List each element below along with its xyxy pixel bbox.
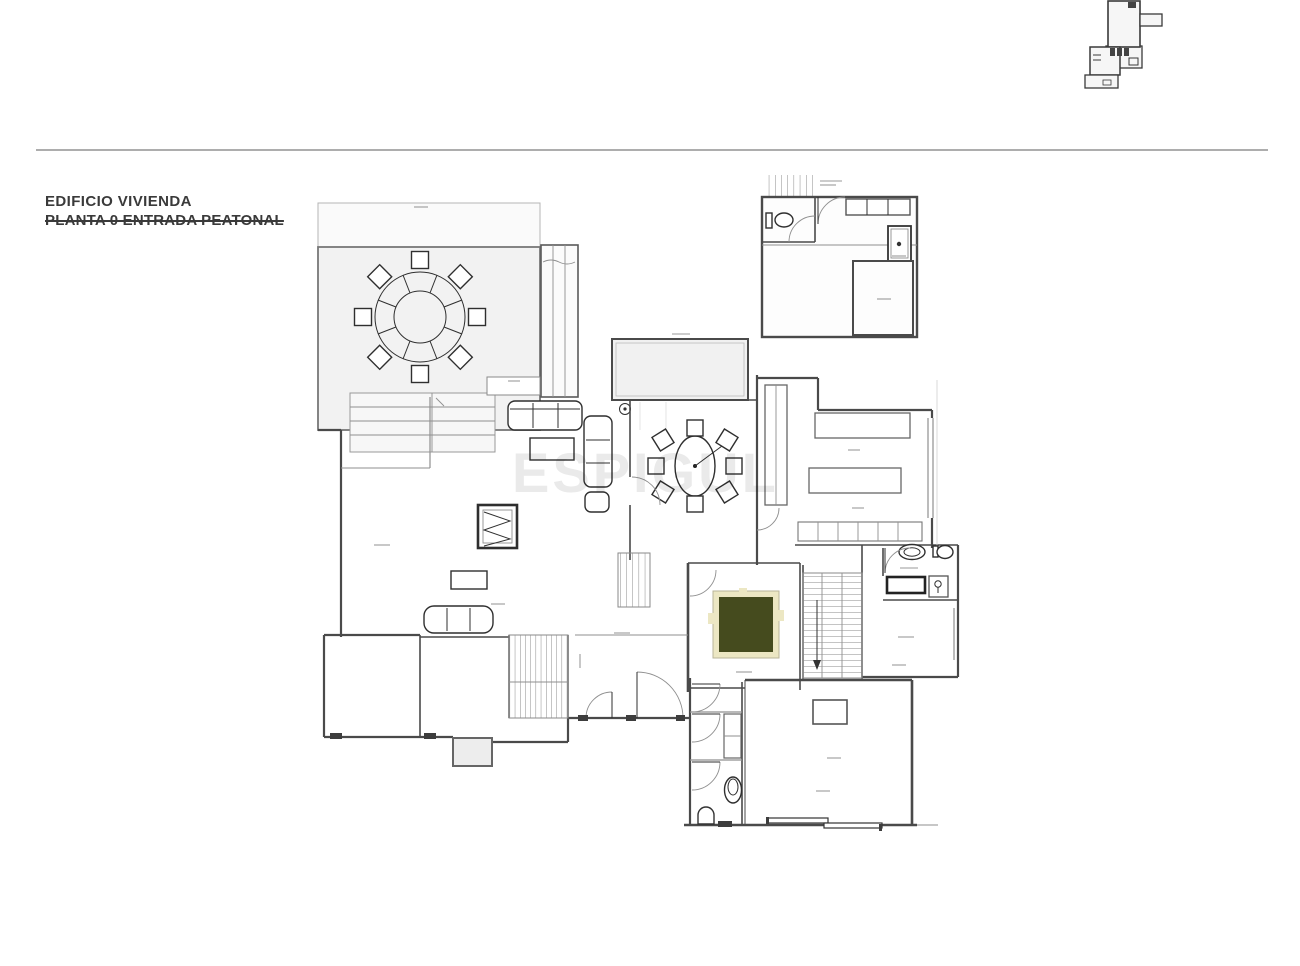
side-table xyxy=(451,571,487,589)
hall-door-arc-small xyxy=(586,692,612,718)
coffee-table xyxy=(530,438,574,460)
garage-entry-block xyxy=(762,197,917,337)
entry-ramp-hatching xyxy=(765,175,817,196)
garden-planter xyxy=(719,597,773,652)
bathroom-sink xyxy=(899,545,925,560)
plant-pot xyxy=(929,576,948,597)
wc-toilet xyxy=(766,213,793,228)
sofa-chaise xyxy=(584,416,612,487)
staircase-a xyxy=(509,635,568,718)
bedroom xyxy=(892,637,914,665)
corridor-cabinet xyxy=(724,714,741,758)
water-heater xyxy=(888,226,911,261)
courtyard-door-arc xyxy=(690,570,716,596)
chimney-shaft xyxy=(541,245,578,397)
sofa-three-seat xyxy=(424,606,493,633)
elevator-shaft xyxy=(478,505,517,548)
bathroom xyxy=(885,545,953,598)
patio-lightwell xyxy=(612,334,748,400)
entry-step-protrusion xyxy=(453,738,492,766)
kitchen-door-arc xyxy=(757,508,779,530)
inner-room xyxy=(853,261,913,335)
kitchen xyxy=(757,385,922,541)
staircase-b xyxy=(618,553,650,607)
skylight-opening xyxy=(813,700,847,724)
main-staircase xyxy=(803,573,862,678)
bottom-room xyxy=(766,700,882,831)
page: EDIFICIO VIVIENDA PLANTA 0 ENTRADA PEATO… xyxy=(0,0,1300,966)
key-plan-miniature xyxy=(1085,1,1162,88)
planter-courtyard-room xyxy=(690,570,784,672)
closet-row xyxy=(846,199,910,215)
sofa-large xyxy=(508,401,582,430)
kitchen-cabinets xyxy=(798,522,922,541)
hall-door-arc-large xyxy=(637,672,683,718)
armchair xyxy=(585,492,609,512)
sliding-window-panel xyxy=(824,823,882,828)
kitchen-island xyxy=(809,468,901,493)
sliding-window-panel xyxy=(768,818,828,823)
exterior-steps xyxy=(350,393,495,452)
wc-toilet-bowl xyxy=(725,777,742,803)
floor-plan-drawing xyxy=(0,0,1300,966)
shower-cabinet xyxy=(887,577,925,593)
urinal xyxy=(698,807,714,824)
wc-corridor xyxy=(692,684,742,824)
bathroom-toilet xyxy=(933,546,953,559)
dining-oval-table xyxy=(675,436,722,496)
bench xyxy=(487,377,540,395)
dining-room xyxy=(640,402,742,512)
kitchen-counter-top xyxy=(815,413,910,438)
